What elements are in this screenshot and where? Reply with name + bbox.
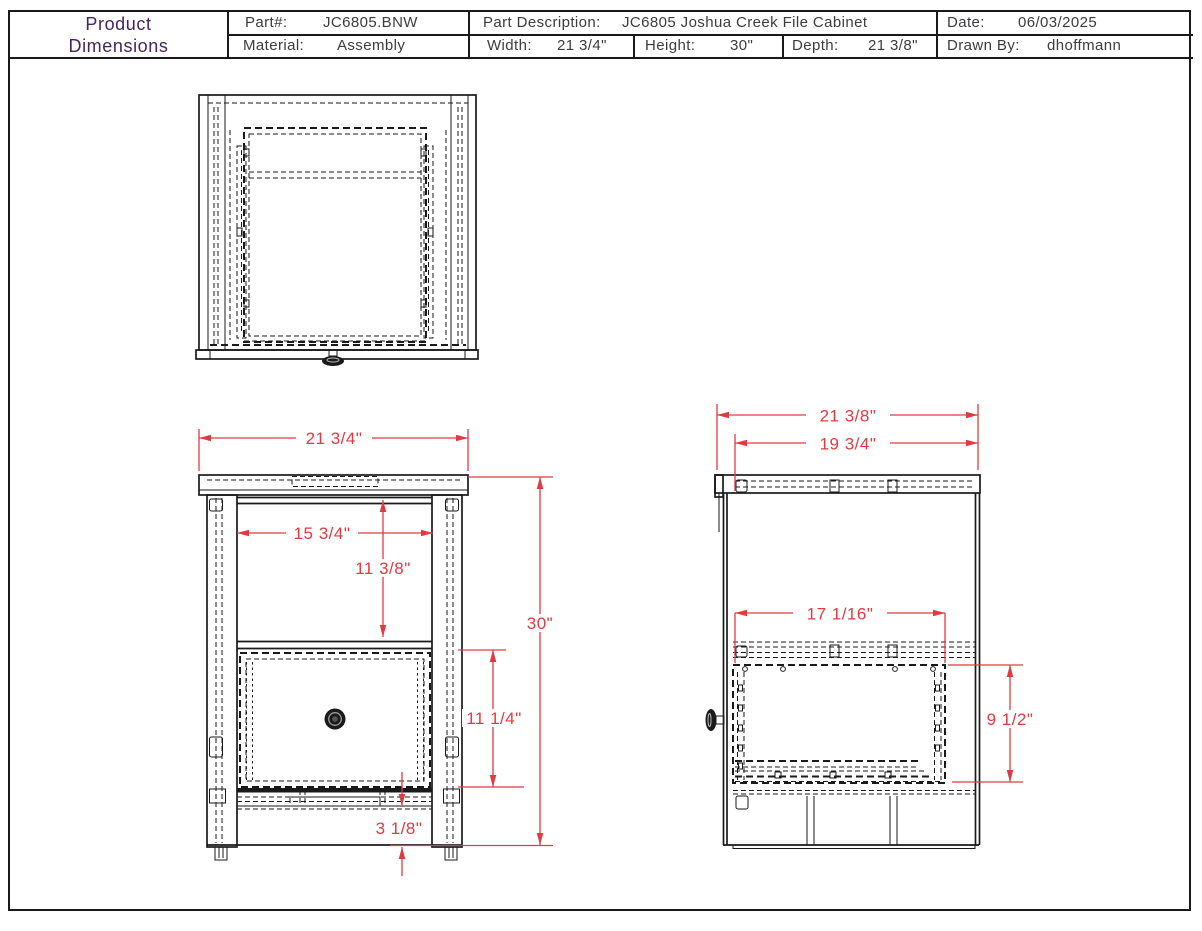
front-view: 21 3/4" 15 3/4" 11 3/8" 30" 11 1/4" 3 1/… [199,429,561,876]
drawing-canvas: 21 3/4" 15 3/4" 11 3/8" 30" 11 1/4" 3 1/… [0,0,1202,931]
dim-front-drawer-height: 11 1/4" [466,709,522,728]
dim-front-base-height: 3 1/8" [376,819,423,838]
side-view-knob [706,709,725,731]
dim-front-opening-width: 15 3/4" [294,524,351,543]
top-view-knob [322,350,344,366]
side-view-dimensions [717,404,1023,782]
drawing-sheet: Product Dimensions Part#: JC6805.BNW Par… [0,0,1202,931]
top-view [196,95,478,366]
dim-side-drawer-depth: 17 1/16" [807,605,874,624]
dim-front-overall-width: 21 3/4" [306,429,363,448]
dim-side-top-depth: 19 3/4" [820,435,877,454]
front-view-knob [325,709,346,730]
dim-side-drawer-height: 9 1/2" [987,710,1034,729]
dim-front-overall-height: 30" [527,614,553,633]
dim-side-overall-depth: 21 3/8" [820,407,877,426]
side-view: 21 3/8" 19 3/4" 17 1/16" 9 1/2" [706,404,1037,849]
dim-front-opening-height: 11 3/8" [355,559,411,578]
